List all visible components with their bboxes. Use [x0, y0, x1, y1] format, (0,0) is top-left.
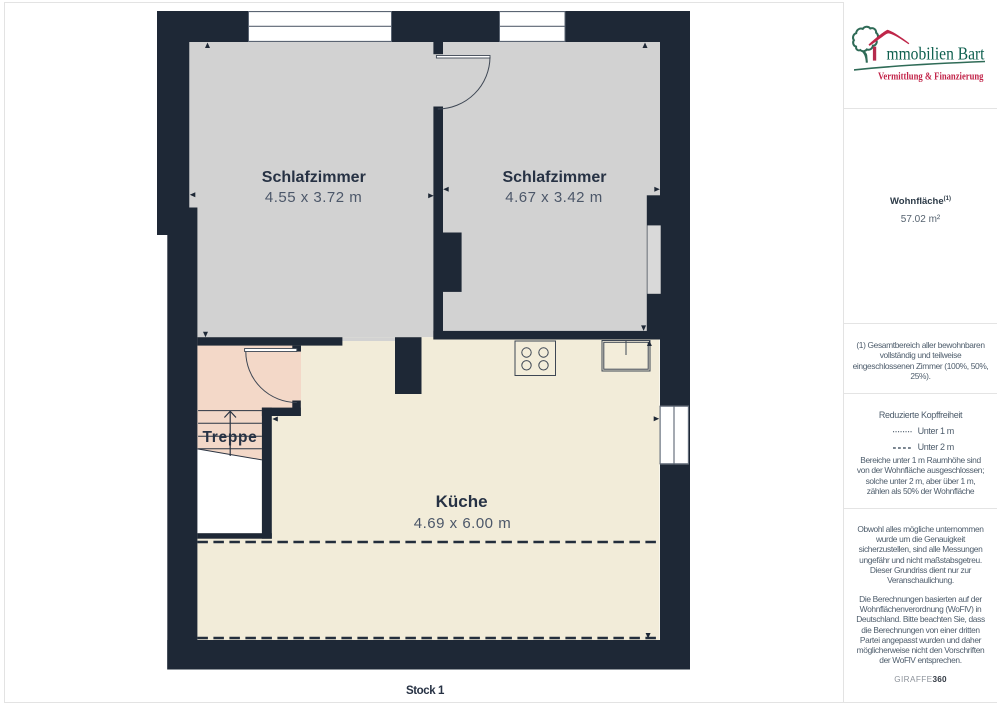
- svg-text:Vermittlung & Finanzierung: Vermittlung & Finanzierung: [878, 70, 984, 82]
- svg-text:mmobilien Bart: mmobilien Bart: [887, 44, 985, 64]
